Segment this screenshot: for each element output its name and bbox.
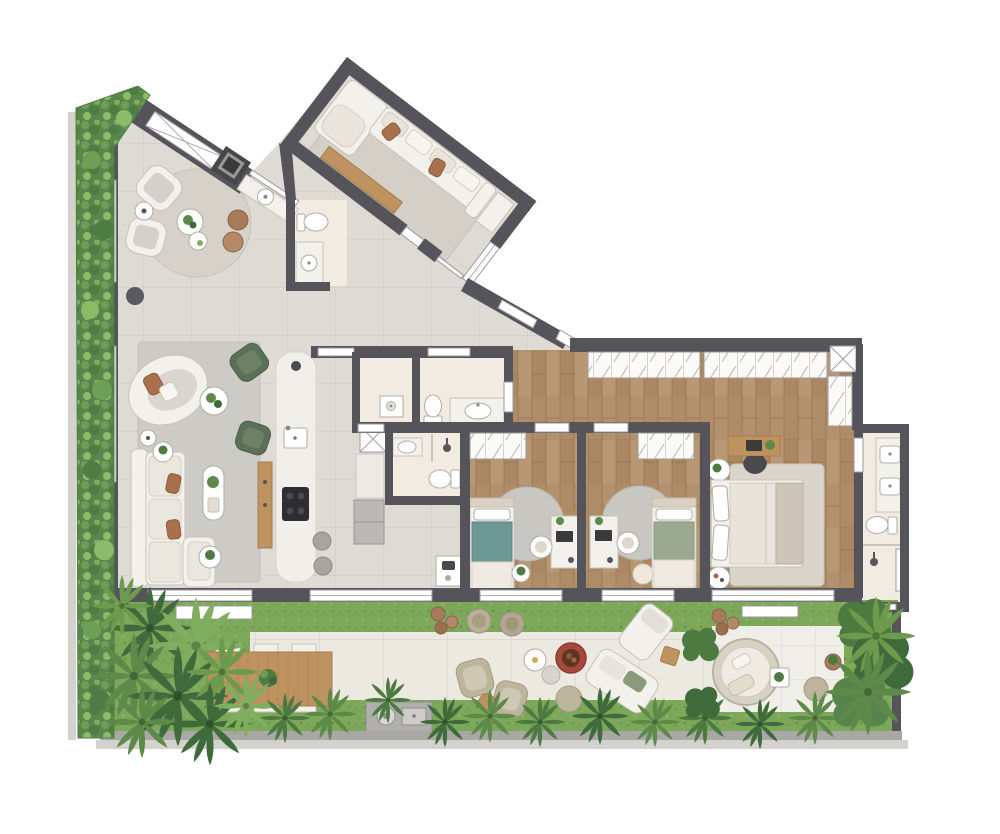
wall-right-upper xyxy=(852,372,863,430)
pouf xyxy=(228,210,248,230)
master-divider-wall xyxy=(700,422,710,596)
linen-closet xyxy=(828,376,852,426)
cooktop xyxy=(282,487,309,521)
palm-icon xyxy=(825,649,911,735)
stool xyxy=(313,532,331,550)
bar-cabinet xyxy=(436,556,462,586)
bath2-door xyxy=(358,424,384,432)
planter-bench-right xyxy=(742,606,798,617)
fern-icon xyxy=(571,687,629,745)
fern-icon xyxy=(630,697,680,747)
powder-wall-left xyxy=(286,196,295,290)
pouf xyxy=(633,564,653,584)
bedroom2-door xyxy=(594,423,628,432)
powder-room xyxy=(296,213,328,284)
bedroom1-door xyxy=(535,423,569,432)
pouf-large xyxy=(556,686,582,712)
sink-icon xyxy=(398,441,416,453)
palm-icon xyxy=(106,686,178,758)
laptop-icon xyxy=(595,530,612,541)
wardrobe xyxy=(470,433,526,459)
services-window xyxy=(428,348,470,356)
bath-wall-right xyxy=(900,424,909,612)
wardrobe-run xyxy=(704,352,827,378)
hedge-curb xyxy=(68,112,76,740)
bath2-wall-left xyxy=(385,430,393,504)
pouf xyxy=(716,623,728,635)
floor-lamp xyxy=(126,287,144,305)
shaft-wall xyxy=(856,344,863,374)
palm-icon xyxy=(91,575,152,636)
shower-head-icon xyxy=(443,444,451,452)
pouf xyxy=(446,616,458,628)
laptop-icon xyxy=(746,440,762,451)
fern-icon xyxy=(463,689,517,743)
wing-top-wall xyxy=(570,338,862,352)
pouf xyxy=(223,232,243,252)
single-bed xyxy=(652,498,696,589)
toilet-icon xyxy=(424,395,442,425)
bath-door xyxy=(854,438,863,472)
living-room xyxy=(116,340,273,587)
toilet-icon xyxy=(866,517,897,535)
side-table xyxy=(542,666,560,684)
nightstand xyxy=(708,567,730,589)
decor-bowl xyxy=(291,361,301,371)
pouf xyxy=(727,617,739,629)
pouf xyxy=(435,622,447,634)
laptop-icon xyxy=(556,531,573,542)
fern-icon xyxy=(365,677,412,724)
laundry-wall-left xyxy=(352,352,360,428)
bathroom-1 xyxy=(424,395,504,425)
shower-head-icon xyxy=(870,558,878,566)
kitchen-island xyxy=(276,352,316,582)
single-bed xyxy=(470,498,514,591)
palm-icon xyxy=(214,674,279,739)
planter-bench-left xyxy=(176,606,252,619)
outdoor-sink-counter xyxy=(366,702,432,732)
double-bed xyxy=(702,480,803,567)
bath1-door xyxy=(504,382,513,412)
powder-wall-bottom xyxy=(286,282,330,291)
bush-icon xyxy=(685,687,720,718)
floor-plan-canvas xyxy=(0,0,1000,834)
wardrobe xyxy=(638,433,694,459)
toilet-icon xyxy=(429,470,460,488)
pouf xyxy=(431,607,445,621)
toilet-icon xyxy=(297,213,328,231)
fern-icon xyxy=(735,699,785,749)
bush-icon xyxy=(682,628,719,661)
bath2-wall-bottom xyxy=(385,496,466,505)
floor-plan-svg xyxy=(0,0,1000,834)
slab-edge xyxy=(96,740,908,749)
fern-icon xyxy=(260,693,310,743)
stool xyxy=(314,557,332,575)
fern-icon xyxy=(303,687,357,741)
laundry xyxy=(380,396,403,417)
fern-icon xyxy=(420,697,470,747)
laundry-bath-wall xyxy=(412,352,420,428)
bedroom1-wall-left xyxy=(460,428,470,596)
wardrobe-run xyxy=(588,352,700,378)
tall-cabinet xyxy=(356,454,384,498)
desk xyxy=(590,516,618,568)
bedroom-divider-wall xyxy=(577,428,586,596)
fern-icon xyxy=(515,697,565,747)
corridor-door xyxy=(318,348,354,356)
pouf xyxy=(712,609,726,623)
